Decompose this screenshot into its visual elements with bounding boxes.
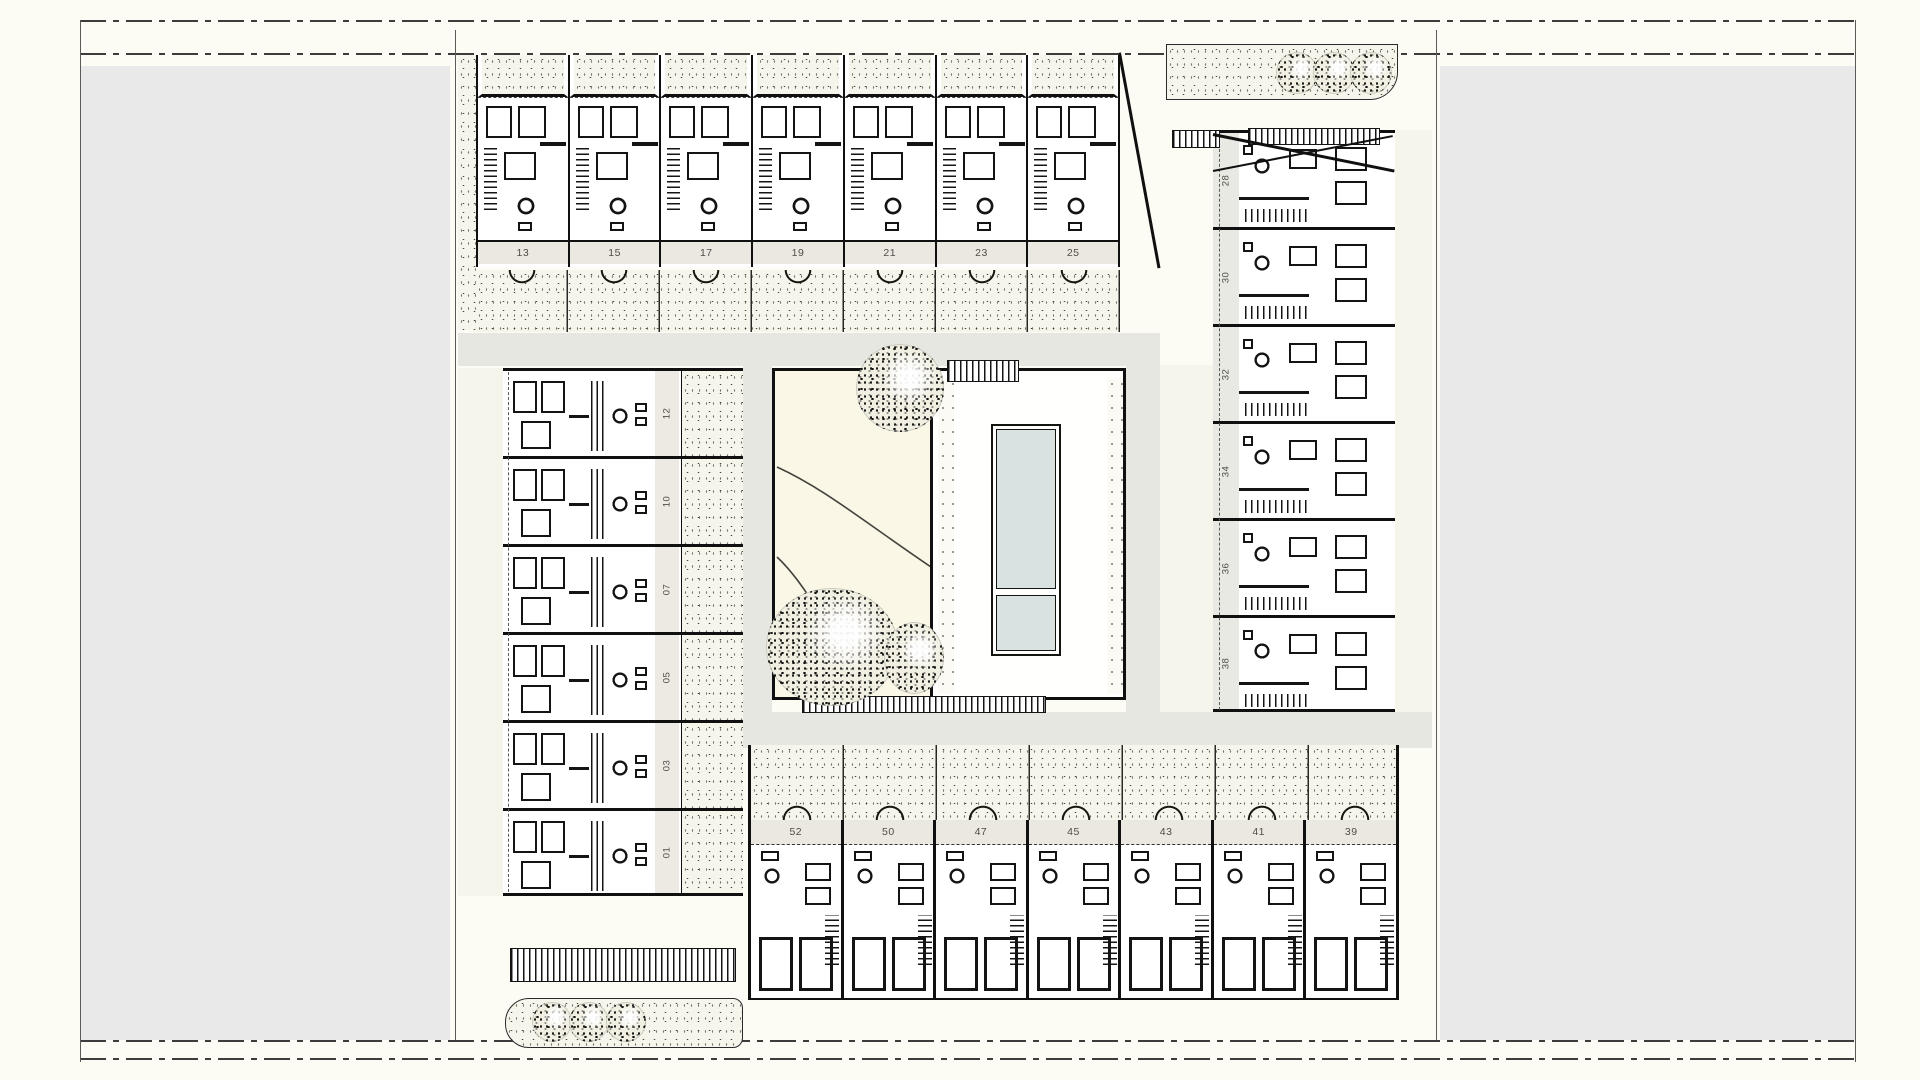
tree-icon — [856, 344, 944, 432]
unit: 03 — [503, 720, 743, 808]
unit-number: 30 — [1213, 230, 1239, 324]
unit-floorplan — [751, 845, 841, 998]
unit-number: 03 — [655, 723, 679, 808]
unit-number: 47 — [936, 820, 1026, 845]
planting-strip — [1395, 130, 1432, 712]
garden-patch — [478, 55, 568, 97]
unit-number: 23 — [937, 240, 1027, 264]
unit-floorplan — [937, 97, 1027, 240]
unit-number-text: 32 — [1220, 368, 1231, 380]
unit-number-text: 30 — [1220, 271, 1231, 283]
unit: 23 — [935, 55, 1027, 267]
tree-icon — [1276, 52, 1318, 94]
unit: 52 — [748, 820, 841, 998]
garden-patch — [681, 547, 743, 632]
unit-number: 01 — [655, 811, 679, 893]
unit-number: 19 — [753, 240, 843, 264]
unit-number-text: 28 — [1220, 174, 1231, 186]
garden-patch — [845, 55, 935, 97]
site-edge-line — [1436, 30, 1437, 1040]
unit-number: 07 — [655, 547, 679, 632]
unit-floorplan — [1029, 845, 1119, 998]
unit-floorplan — [478, 97, 568, 240]
unit-number-text: 12 — [661, 408, 672, 420]
unit: 43 — [1118, 820, 1211, 998]
unit-floorplan — [1214, 845, 1304, 998]
bottom-row-building: 52 50 47 45 43 41 39 — [748, 820, 1399, 1000]
walkway — [743, 333, 772, 748]
unit: 10 — [503, 456, 743, 544]
unit-number: 36 — [1213, 521, 1239, 615]
site-plan-drawing: 13 15 17 19 21 23 25 — [0, 0, 1920, 1080]
top-row-building: 13 15 17 19 21 23 25 — [476, 55, 1120, 267]
unit-floorplan — [661, 97, 751, 240]
right-offsite-panel — [1440, 66, 1855, 1040]
unit: 34 — [1213, 421, 1395, 518]
unit-number-text: 38 — [1220, 658, 1231, 670]
plot-diagonal-line — [1118, 53, 1160, 269]
boundary-dashed-line — [80, 1040, 1855, 1042]
site-edge-line — [455, 30, 456, 1040]
unit-floorplan — [1028, 97, 1118, 240]
unit-number-text: 05 — [661, 672, 672, 684]
unit: 25 — [1026, 55, 1118, 267]
unit-number: 45 — [1029, 820, 1119, 845]
unit: 19 — [751, 55, 843, 267]
tree-icon — [606, 1002, 646, 1042]
unit: 39 — [1303, 820, 1396, 998]
garden-patch — [681, 635, 743, 720]
unit: 30 — [1213, 227, 1395, 324]
setback-dashed-line — [1219, 134, 1220, 710]
garden-patch — [681, 371, 743, 456]
planting-strip — [1160, 365, 1213, 712]
unit: 50 — [841, 820, 934, 998]
unit-number: 41 — [1214, 820, 1304, 845]
gravel-strip — [1107, 378, 1123, 694]
unit-number-text: 07 — [661, 584, 672, 596]
right-column-building: 28 30 32 34 36 38 — [1213, 130, 1395, 712]
setback-dashed-line — [508, 372, 509, 892]
swimming-pool — [991, 424, 1061, 656]
unit-floorplan — [753, 97, 843, 240]
unit-number-text: 03 — [661, 760, 672, 772]
entry-walkway-hatch — [947, 360, 1019, 382]
boundary-dashed-line — [80, 1058, 1855, 1060]
unit-floorplan — [936, 845, 1026, 998]
unit-number: 39 — [1306, 820, 1396, 845]
unit-number: 25 — [1028, 240, 1118, 264]
tree-icon — [884, 622, 944, 694]
garden-strip — [748, 745, 1399, 820]
unit: 38 — [1213, 615, 1395, 712]
unit-number: 43 — [1121, 820, 1211, 845]
garden-patch — [681, 459, 743, 544]
door-arcs — [751, 745, 1396, 820]
unit-number: 13 — [478, 240, 568, 264]
walkway — [1126, 365, 1160, 712]
unit: 21 — [843, 55, 935, 267]
unit: 32 — [1213, 324, 1395, 421]
walkway — [458, 333, 1160, 366]
unit-number: 50 — [844, 820, 934, 845]
boundary-dashed-line — [80, 20, 1855, 22]
unit: 05 — [503, 632, 743, 720]
planting-strip — [458, 368, 503, 896]
garden-patch — [681, 723, 743, 808]
walkway — [743, 712, 1432, 748]
unit: 47 — [933, 820, 1026, 998]
left-column-building: 12 10 07 05 03 01 — [503, 368, 743, 896]
unit-number: 38 — [1213, 618, 1239, 709]
unit: 41 — [1211, 820, 1304, 998]
unit-floorplan — [570, 97, 660, 240]
unit-floorplan — [845, 97, 935, 240]
garden-patch — [937, 55, 1027, 97]
unit-number: 17 — [661, 240, 751, 264]
unit-number: 05 — [655, 635, 679, 720]
unit-number-text: 10 — [661, 496, 672, 508]
unit-number: 10 — [655, 459, 679, 544]
boundary-line — [80, 20, 81, 1062]
unit-floorplan — [1306, 845, 1396, 998]
unit: 01 — [503, 808, 743, 896]
parking-hatch — [510, 948, 736, 982]
garden-patch — [753, 55, 843, 97]
door-arcs — [476, 270, 1120, 332]
tree-icon — [766, 588, 898, 706]
garden-patch — [1028, 55, 1118, 97]
unit-number: 15 — [570, 240, 660, 264]
tree-icon — [1313, 52, 1355, 94]
unit-number: 21 — [845, 240, 935, 264]
garden-patch — [681, 811, 743, 893]
planting-strip — [458, 55, 476, 330]
garden-patch — [661, 55, 751, 97]
unit-number: 52 — [751, 820, 841, 845]
unit-floorplan — [1121, 845, 1211, 998]
tree-icon — [532, 1002, 572, 1042]
unit: 12 — [503, 368, 743, 456]
unit-number-text: 34 — [1220, 465, 1231, 477]
unit-number: 12 — [655, 371, 679, 456]
tree-icon — [1350, 52, 1392, 94]
unit-number-text: 36 — [1220, 562, 1231, 574]
garden-patch — [570, 55, 660, 97]
unit-floorplan — [844, 845, 934, 998]
unit-number: 32 — [1213, 327, 1239, 421]
unit: 13 — [476, 55, 568, 267]
amenity-building — [930, 368, 1126, 700]
pool-main-basin — [996, 429, 1056, 589]
unit: 45 — [1026, 820, 1119, 998]
pool-kids-basin — [996, 595, 1056, 651]
tree-icon — [569, 1002, 609, 1042]
unit-number: 34 — [1213, 424, 1239, 518]
unit: 36 — [1213, 518, 1395, 615]
unit: 15 — [568, 55, 660, 267]
unit: 17 — [659, 55, 751, 267]
garden-strip — [476, 270, 1120, 332]
unit: 07 — [503, 544, 743, 632]
boundary-line — [1855, 20, 1856, 1062]
left-offsite-panel — [80, 66, 450, 1040]
unit-number-text: 01 — [661, 846, 672, 858]
